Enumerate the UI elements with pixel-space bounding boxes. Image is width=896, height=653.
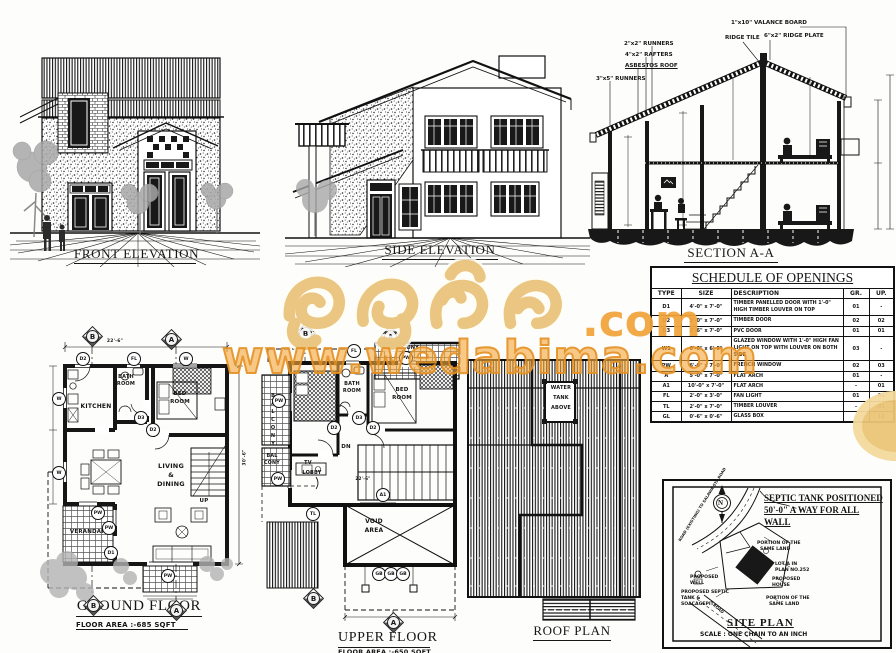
site-note-line: SEPTIC TANK POSITIONED	[764, 493, 883, 503]
table-row: A110'-0" x 7'-0"FLAT ARCH-01	[651, 381, 894, 391]
proposed-house-label: HOUSE	[772, 583, 790, 589]
section-walls	[608, 63, 841, 229]
garden-trees	[40, 551, 233, 601]
room-label-bathroom: ROOM	[338, 388, 366, 394]
schedule-title: SCHEDULE OF OPENINGS	[651, 267, 894, 289]
room-label-balcony-left: BALCONY	[266, 378, 276, 464]
upper-floor-title: UPPER FLOOR	[338, 630, 430, 648]
room-label-kitchen: KITCHEN	[73, 403, 119, 410]
roof-plan-title: ROOF PLAN	[533, 623, 611, 641]
opening-marker: PW	[272, 394, 286, 408]
schedule-header-row: TYPE SIZE DESCRIPTION GR. UP.	[651, 289, 894, 299]
opening-marker: PW	[161, 569, 175, 583]
compass-north-label: N	[718, 499, 723, 507]
water-tank-label: WATER	[548, 385, 574, 391]
opening-marker: FL	[127, 352, 141, 366]
table-row: GL0'-6" x 0'-6"GLASS BOX-12	[651, 412, 894, 423]
opening-marker: GB	[396, 567, 410, 581]
room-label-void: AREA	[358, 527, 390, 534]
proposed-well-label: WELL	[690, 581, 704, 587]
callout-runners-2x2: 2"x2" RUNNERS	[624, 41, 674, 47]
room-label-bathroom: ROOM	[112, 381, 140, 387]
room-label-bedroom: BED	[388, 387, 416, 393]
grid-marker: A	[163, 331, 179, 347]
schedule-title-row: SCHEDULE OF OPENINGS	[651, 267, 894, 289]
opening-marker: D3	[352, 411, 366, 425]
room-label-bal: BAL	[261, 454, 283, 459]
room-label-living: LIVING	[148, 462, 194, 470]
site-plan-scale: SCALE : ONE CHAIN TO AN INCH	[700, 631, 807, 638]
room-label-bedroom: ROOM	[166, 399, 194, 405]
grid-marker: B	[85, 597, 101, 613]
opening-marker: D2	[366, 421, 380, 435]
portion-bottom-label: SAME LAND	[769, 602, 799, 608]
lot-label: PLAN NO.252	[775, 568, 809, 574]
room-label-bedroom: BED	[166, 391, 194, 397]
opening-marker: PW	[399, 351, 413, 365]
section-title: SECTION A-A	[684, 245, 778, 263]
callout-rafters: 4"x2" RAFTERS	[625, 52, 673, 58]
stairs-up-label: UP	[196, 498, 212, 504]
room-label-bedroom: ROOM	[388, 395, 416, 401]
table-row: A5'-0" x 7'-0"FLAT ARCH01-	[651, 371, 894, 381]
table-row: W16'-0" x 6'-0"GLAZED WINDOW WITH 1'-0" …	[651, 336, 894, 361]
schedule-of-openings-table: SCHEDULE OF OPENINGS TYPE SIZE DESCRIPTI…	[650, 266, 895, 423]
upper-floor-drawing	[258, 315, 465, 653]
table-row: D14'-0" x 7'-0"TIMBER PANELLED DOOR WITH…	[651, 299, 894, 316]
opening-marker: D1	[104, 546, 118, 560]
table-row: FL2'-0" x 3'-0"FAN LIGHT0101	[651, 391, 894, 401]
table-row: D32'-6" x 7'-0"PVC DOOR0101	[651, 326, 894, 336]
callout-valance-board: 1"x10" VALANCE BOARD	[731, 20, 807, 26]
dim-label: 22'-6"	[348, 476, 378, 481]
grid-marker: B	[305, 590, 321, 606]
septic-label: SOACAGEPIT	[681, 602, 714, 608]
opening-marker: D2	[76, 352, 90, 366]
opening-marker: TL	[306, 507, 320, 521]
opening-marker: PW	[91, 506, 105, 520]
site-note-line: 50'-0" A WAY FOR ALL	[764, 505, 859, 515]
opening-marker: W	[52, 466, 66, 480]
callout-ridge-tile: RIDGE TILE	[725, 35, 760, 41]
front-elevation-drawing	[10, 5, 260, 267]
side-elevation-drawing	[285, 30, 590, 267]
opening-marker: W	[52, 392, 66, 406]
room-label-living: DINING	[148, 480, 194, 488]
ground-floor-area: FLOOR AREA :-685 SQFT	[76, 621, 188, 630]
portion-top-label: SAME LAND	[760, 547, 790, 553]
dim-label: 22'-6"	[100, 339, 130, 344]
front-elevation-title: FRONT ELEVATION	[74, 246, 196, 264]
table-row: D23'-0" x 7'-0"TIMBER DOOR0202	[651, 316, 894, 326]
site-note-line: WALL	[764, 517, 791, 527]
room-label-tv: TV	[300, 460, 316, 466]
grid-marker: B	[297, 325, 313, 341]
grid-marker: A	[168, 602, 184, 618]
dim-label: 30'-6"	[243, 443, 248, 473]
stairs-dn-label: DN	[338, 444, 354, 450]
grid-marker: A	[385, 614, 401, 630]
callout-ridge-plate: 6"x2" RIDGE PLATE	[764, 33, 824, 39]
opening-marker: PW	[271, 472, 285, 486]
table-row: PW6'-0" x 7'-0"FRENCH WINDOW0203	[651, 361, 894, 371]
grid-marker: B	[84, 328, 100, 344]
grid-marker: A	[382, 328, 398, 344]
blueprint-sheet: FRONT ELEVATION	[0, 0, 896, 653]
opening-marker: FL	[347, 344, 361, 358]
callout-runners-3x5: 3"x5" RUNNERS	[596, 76, 646, 82]
room-label-bathroom: BATH	[338, 381, 366, 387]
water-tank-label: ABOVE	[548, 405, 574, 411]
opening-marker: D3	[134, 411, 148, 425]
site-plan-title: SITE PLAN	[727, 617, 794, 629]
table-row: TL2'-0" x 7'-0"TIMBER LOUVER-01	[651, 402, 894, 412]
room-label-void: VOID	[358, 518, 390, 525]
callout-asbestos-roof: ASBESTOS ROOF	[625, 63, 678, 69]
opening-marker: D2	[146, 423, 160, 437]
opening-marker: D2	[327, 421, 341, 435]
room-label-lobby: LOBBY	[296, 470, 328, 476]
opening-marker: PW	[102, 521, 116, 535]
opening-marker: W	[179, 352, 193, 366]
water-tank-label: TANK	[548, 395, 574, 401]
opening-marker: A1	[376, 488, 390, 502]
room-label-bathroom: BATH	[112, 374, 140, 380]
side-elevation-title: SIDE ELEVATION	[382, 242, 498, 260]
room-label-cony: CONY	[261, 461, 283, 466]
upper-floor-area: FLOOR AREA :-650 SQFT	[338, 648, 436, 653]
ground-floor-drawing	[35, 300, 255, 645]
room-label-living: &	[148, 471, 194, 479]
